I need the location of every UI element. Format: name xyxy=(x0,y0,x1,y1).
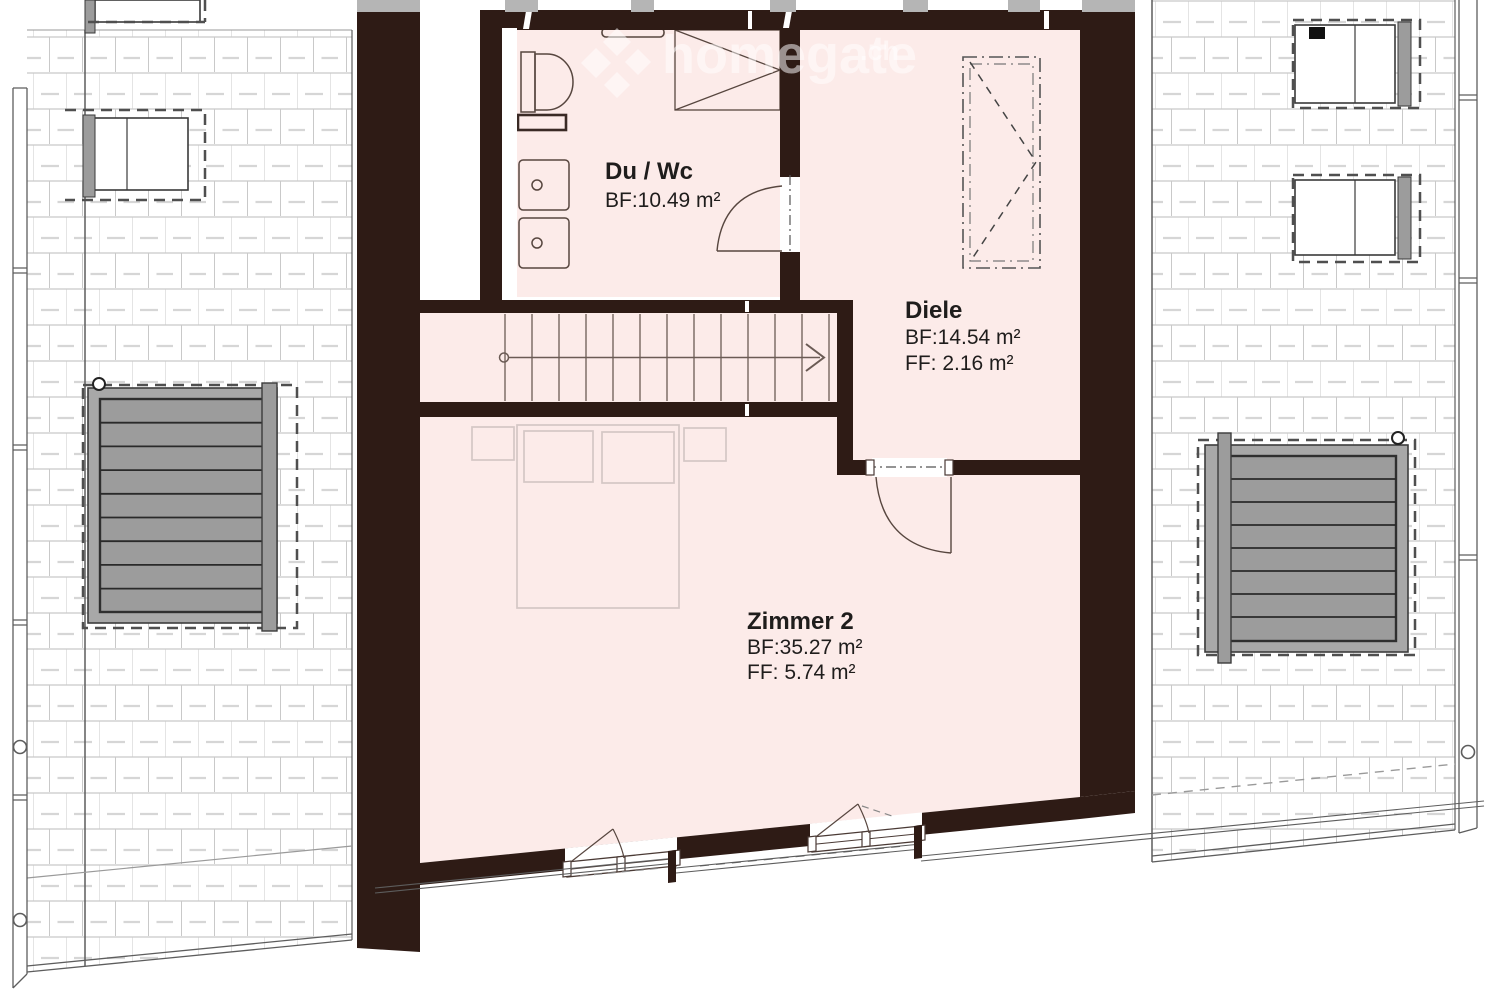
watermark-tld: .ch xyxy=(860,36,899,66)
room-zimmer2-area-bf: BF:35.27 m² xyxy=(747,636,863,659)
room-diele-name: Diele xyxy=(905,297,962,324)
room-zimmer2-area-ff: FF: 5.74 m² xyxy=(747,661,856,684)
skylight-left xyxy=(65,110,205,200)
window-hinge-icon xyxy=(93,378,105,390)
wall-right xyxy=(1080,10,1135,797)
rooms xyxy=(420,28,1080,863)
room-duwc-name: Du / Wc xyxy=(605,158,693,185)
room-diele-area-bf: BF:14.54 m² xyxy=(905,326,1021,349)
left-roof xyxy=(13,0,352,988)
wall-diele-south-right xyxy=(947,460,1080,475)
skylight-top-left xyxy=(85,0,205,33)
right-roof xyxy=(1152,0,1477,862)
wall-diele-west xyxy=(837,313,853,475)
skylight-right-2 xyxy=(1293,175,1420,262)
wall-stairs-bottom xyxy=(413,402,853,417)
shaft xyxy=(502,28,517,298)
skylight-marker xyxy=(1309,27,1325,39)
floorplan-canvas: homegate .ch Du / Wc BF:10.49 m² Diele B… xyxy=(0,0,1500,992)
roof-window-left xyxy=(83,378,297,631)
room-zimmer2-name: Zimmer 2 xyxy=(747,608,854,635)
gutter-bracket-icon xyxy=(1462,746,1475,759)
right-gutter xyxy=(1459,0,1477,833)
wall-stairs-top xyxy=(413,300,853,313)
gutter-bracket-icon xyxy=(14,914,27,927)
left-gutter xyxy=(13,88,27,988)
wall-bath-west xyxy=(480,10,502,302)
room-diele-area-ff: FF: 2.16 m² xyxy=(905,352,1014,375)
window-hinge-icon xyxy=(1392,432,1404,444)
gutter-bracket-icon xyxy=(14,741,27,754)
room-duwc-area: BF:10.49 m² xyxy=(605,189,721,212)
roof-window-right xyxy=(1198,432,1415,663)
floor-plan: homegate .ch Du / Wc BF:10.49 m² Diele B… xyxy=(0,0,1500,992)
wall-left xyxy=(357,0,420,952)
skylight-right-1 xyxy=(1293,20,1420,108)
